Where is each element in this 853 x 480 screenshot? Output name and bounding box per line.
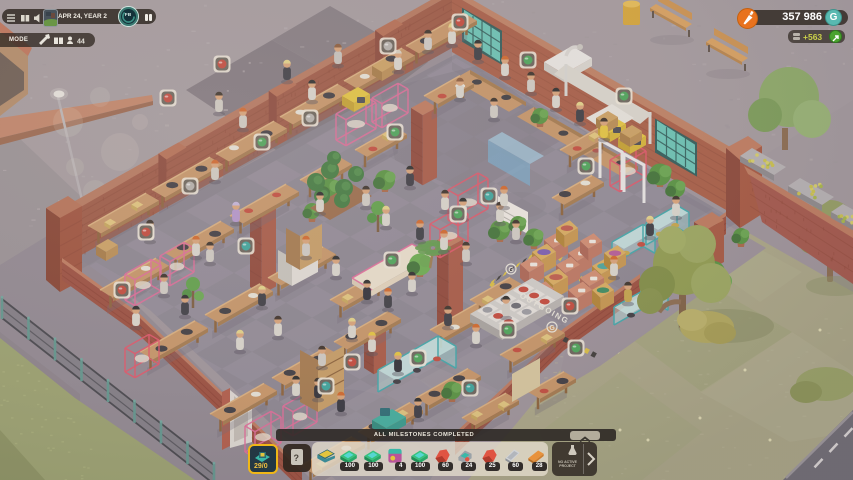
svg-text:?: ? [294,453,300,463]
svg-text:44: 44 [77,39,85,46]
svg-text:29/0: 29/0 [254,463,268,470]
